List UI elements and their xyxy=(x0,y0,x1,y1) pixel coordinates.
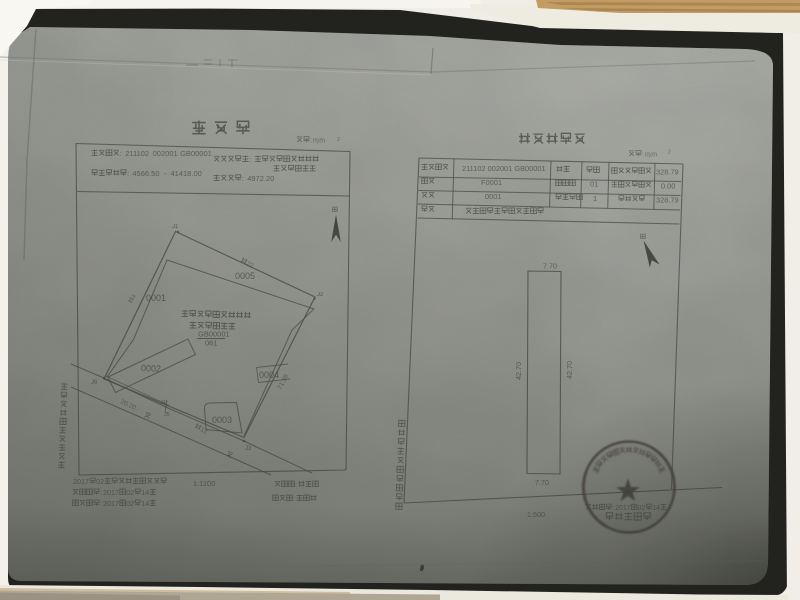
svg-text:GB00001: GB00001 xyxy=(198,330,230,339)
svg-text:F0001: F0001 xyxy=(481,178,502,187)
svg-text::: : xyxy=(120,149,122,158)
svg-text:2: 2 xyxy=(337,137,340,143)
svg-text:4566.50: 4566.50 xyxy=(132,169,159,178)
svg-text:GB00001: GB00001 xyxy=(180,149,212,158)
svg-text:02: 02 xyxy=(126,499,134,508)
svg-text::: : xyxy=(642,152,644,159)
svg-text:7.70: 7.70 xyxy=(543,262,557,271)
svg-text:J3: J3 xyxy=(245,446,252,452)
svg-text:0001: 0001 xyxy=(146,293,166,303)
svg-text:1:1100: 1:1100 xyxy=(193,479,215,488)
svg-text:2017: 2017 xyxy=(73,477,89,486)
svg-text:4972.20: 4972.20 xyxy=(247,174,274,183)
svg-text::: : xyxy=(100,499,102,508)
svg-text:1: 1 xyxy=(593,194,597,203)
svg-text:01: 01 xyxy=(590,180,598,189)
svg-text:J1: J1 xyxy=(172,224,179,230)
svg-text:1:500: 1:500 xyxy=(527,510,545,519)
svg-text:061: 061 xyxy=(205,339,218,348)
svg-text:14: 14 xyxy=(652,505,660,512)
svg-text:0.00: 0.00 xyxy=(661,181,675,190)
svg-text:J5: J5 xyxy=(164,412,170,418)
svg-text:02: 02 xyxy=(96,477,104,486)
svg-text:14: 14 xyxy=(141,499,149,508)
svg-text:02: 02 xyxy=(638,505,646,512)
svg-text:42.70: 42.70 xyxy=(514,362,523,380)
svg-text:m: m xyxy=(651,152,657,159)
svg-text:2017: 2017 xyxy=(103,488,119,497)
svg-text:7.70: 7.70 xyxy=(535,478,549,487)
svg-text:14: 14 xyxy=(141,488,149,497)
svg-text::: : xyxy=(249,155,251,164)
svg-text:211102 002001 GB00001: 211102 002001 GB00001 xyxy=(462,164,546,173)
svg-text:J6: J6 xyxy=(91,380,98,386)
svg-text:0005: 0005 xyxy=(235,271,255,281)
svg-text::: : xyxy=(100,488,102,497)
svg-text:2017: 2017 xyxy=(615,505,631,512)
svg-text:42.70: 42.70 xyxy=(565,361,574,379)
svg-text:41418.00: 41418.00 xyxy=(171,169,202,178)
svg-text:0003: 0003 xyxy=(212,415,232,425)
svg-text:2: 2 xyxy=(668,150,671,156)
svg-text:211102: 211102 xyxy=(125,149,149,158)
svg-text:0004: 0004 xyxy=(259,370,279,380)
svg-text:328.79: 328.79 xyxy=(656,168,679,177)
svg-text:m: m xyxy=(319,138,325,145)
svg-text:2017: 2017 xyxy=(103,499,119,508)
svg-text:328.79: 328.79 xyxy=(656,196,679,205)
svg-text::: : xyxy=(242,174,244,183)
svg-text:02: 02 xyxy=(126,488,134,497)
svg-text::: : xyxy=(127,169,129,178)
svg-text:002001: 002001 xyxy=(153,149,178,158)
svg-text:0001: 0001 xyxy=(485,192,501,201)
svg-text::: : xyxy=(612,505,614,512)
svg-text::: : xyxy=(293,494,295,503)
svg-text:0002: 0002 xyxy=(141,363,161,374)
svg-text::: : xyxy=(310,138,312,145)
svg-text:J4: J4 xyxy=(160,400,166,406)
svg-text:J2: J2 xyxy=(317,292,324,298)
svg-text::: : xyxy=(295,480,297,489)
